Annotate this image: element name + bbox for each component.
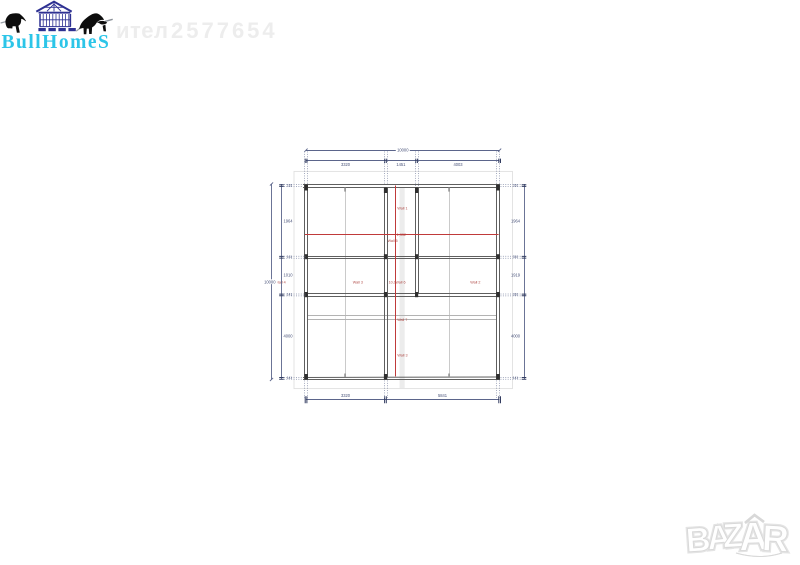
svg-text:10000: 10000 [397, 148, 409, 153]
svg-text:5841: 5841 [438, 393, 448, 398]
svg-text:310: 310 [513, 255, 519, 259]
svg-text:1010: 1010 [283, 273, 293, 278]
svg-text:10000: 10000 [264, 279, 276, 284]
svg-text:310: 310 [513, 183, 519, 187]
svg-text:161: 161 [287, 255, 293, 259]
svg-text:310: 310 [513, 293, 519, 297]
svg-text:2577654: 2577654 [171, 18, 278, 43]
svg-text:183: 183 [287, 183, 293, 187]
svg-text:Wall 3: Wall 3 [397, 353, 407, 357]
svg-text:1919: 1919 [511, 273, 521, 278]
svg-text:4000: 4000 [283, 334, 293, 339]
svg-text:BullHomeS: BullHomeS [2, 32, 111, 53]
svg-text:Wall 3: Wall 3 [353, 281, 363, 285]
svg-text:Wall 5: Wall 5 [388, 239, 398, 243]
svg-text:3320: 3320 [341, 162, 351, 167]
svg-text:1964: 1964 [283, 219, 293, 224]
svg-text:141: 141 [287, 293, 293, 297]
svg-text:Wall 6: Wall 6 [395, 280, 405, 284]
svg-text:4003: 4003 [453, 162, 463, 167]
svg-text:3320: 3320 [341, 393, 351, 398]
svg-text:Wall 2: Wall 2 [470, 281, 480, 285]
svg-text:1,332: 1,332 [397, 233, 406, 237]
svg-text:ител: ител [116, 18, 169, 43]
svg-text:141: 141 [287, 376, 293, 380]
svg-text:4000: 4000 [511, 334, 521, 339]
svg-text:Wall 1: Wall 1 [397, 206, 407, 210]
svg-text:141: 141 [513, 376, 519, 380]
svg-text:1451: 1451 [396, 162, 406, 167]
svg-text:Wall 7: Wall 7 [397, 318, 407, 322]
svg-text:1964: 1964 [511, 219, 521, 224]
